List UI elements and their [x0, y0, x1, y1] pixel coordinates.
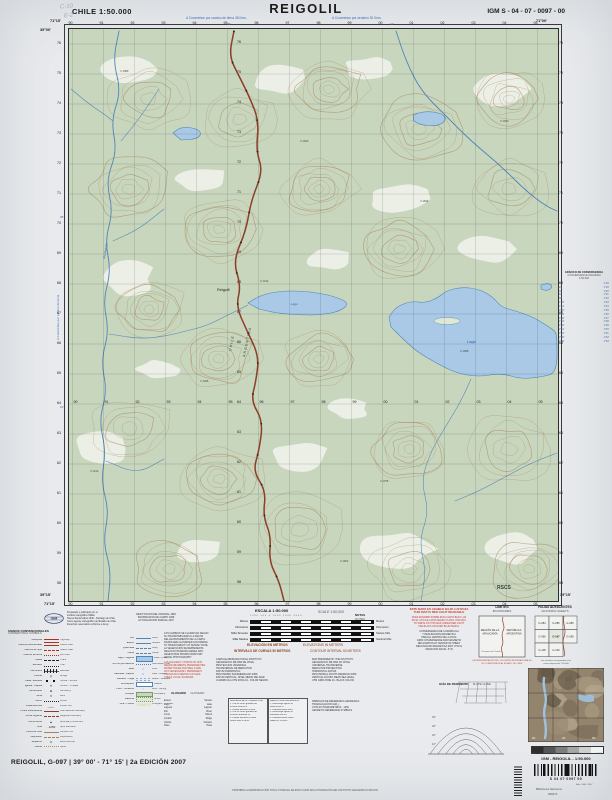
- contour-line: [501, 442, 518, 455]
- open-terrain-patch: [372, 184, 430, 212]
- margin-easting-bottom: 90: [69, 602, 73, 606]
- scale-label-es: Kilómetros: [216, 626, 250, 629]
- notes-label: NOTES: [348, 618, 372, 621]
- margin-northing-left: 75: [57, 71, 61, 75]
- legend-label-en: Sand: [59, 746, 66, 749]
- symbols-column-1: SIGNOS CONVENCIONALES CONVENTIONAL SYMBO…: [8, 630, 85, 750]
- symbol-hito: ▲: [44, 720, 59, 724]
- margin-northing-left: 66: [57, 341, 61, 345]
- grid-easting-label: 96: [260, 400, 264, 404]
- legend-label-es: Río: [100, 637, 136, 640]
- grid-northing-label: 62: [237, 460, 241, 464]
- text-line: GEODETIC REFERENCE SYMBOLS: [312, 709, 400, 712]
- legend-label-es: Límite regional: [8, 715, 44, 718]
- legend-label-es: Límite internacional: [8, 710, 44, 713]
- symbols-rows-1: AutopistaHighwayCamino pavimentadoPaved …: [8, 638, 85, 750]
- margin-northing-right: 73: [559, 131, 563, 135]
- margin-northing-left: 68: [57, 281, 61, 285]
- contour-line: [299, 174, 338, 205]
- limites-label-bottom: Provincia de Cautín: [481, 650, 501, 653]
- grid-northing-label: 73: [237, 130, 241, 134]
- margin-northing-left: 76: [57, 41, 61, 45]
- elevation-line1-es: ELEVACIÓN EN METROS: [247, 644, 288, 648]
- legend-label-es: Cascada - Rápido: [100, 673, 136, 676]
- scale-label-es: Metros: [216, 620, 250, 623]
- legend-label-es: Estero: [100, 642, 136, 645]
- label-lake-big: Lago: [467, 339, 477, 344]
- slope-tick-label: 20°: [432, 733, 436, 737]
- legend-label-en: Spot elevation: [59, 726, 76, 729]
- margin-easting-top: 99: [348, 21, 352, 25]
- adjoining-sheet-code: G-109: [552, 648, 560, 652]
- limites-label-left-2: ARAUCANÍA: [482, 632, 497, 636]
- legend-label-es: Cerco: [8, 700, 44, 703]
- igm-seal-icon: IGM: [44, 613, 64, 624]
- convergence-block: GRÁFICO DE CONVERGENCIA CONVERGENCE DIAG…: [559, 272, 609, 343]
- scale-bar: [250, 626, 374, 631]
- legend-label-es: Ventisquero: [100, 683, 136, 686]
- classification-notes: LOS CAMINOS SE CLASIFICAN SEGÚNSU TRANSI…: [164, 632, 212, 659]
- symbol-blue2: [136, 637, 151, 641]
- margin-northing-left: 58: [57, 581, 61, 585]
- declination-notes: CONVERGENCIA DE CUADRÍCULAY DECLINACIÓN …: [404, 630, 474, 651]
- contour-line: [320, 81, 340, 97]
- margin-easting-bottom: 01: [410, 602, 414, 606]
- margin-northing-right: 70: [559, 221, 563, 225]
- grid-northing-label: 66: [237, 340, 241, 344]
- spot-height: 1544: [423, 199, 429, 203]
- scale-label-en: Nautical Mile: [374, 638, 391, 641]
- datum-text-en: MAP PREPARED BY THE INSTITUTOGEOGRÁFICO …: [312, 658, 404, 682]
- legend-label-en: Power line: [59, 705, 72, 708]
- legend-label-en: International boundary: [59, 710, 85, 713]
- legend-label-en: Mine: [59, 695, 66, 698]
- minute-label-left: 05': [60, 216, 64, 219]
- scale-bars: MetrosMetersKilómetrosKilometersMilla Te…: [216, 619, 406, 643]
- margin-easting-top: 91: [100, 21, 104, 25]
- contour-line: [213, 354, 224, 363]
- grid-northing-label: 76: [237, 40, 241, 44]
- margin-northing-right: 59: [559, 551, 563, 555]
- legend-label-es: Puente: [8, 675, 44, 678]
- symbol-fence: [44, 700, 59, 704]
- country-scale-label: CHILE 1:50.000: [72, 8, 132, 17]
- bar-number: 2000: [597, 753, 602, 756]
- text-line: USE BLACK OR DARK BLUE PENCIL.: [404, 625, 474, 628]
- symbol-blueDash: [136, 652, 151, 656]
- lake-island: [434, 318, 460, 325]
- legend-label-en: Dirt road: [59, 654, 70, 657]
- symbol-cem: ⊞: [44, 689, 59, 693]
- grid-easting-label: 91: [105, 400, 109, 404]
- contour-line: [313, 355, 324, 363]
- symbol-lake: [136, 656, 153, 661]
- route-note-right: A Curarrehue por sendero 52 Kms.: [332, 17, 381, 21]
- grid-easting-label: 95: [229, 400, 233, 404]
- legend-label-en: Bridge: [59, 675, 68, 678]
- contour-line: [394, 245, 405, 254]
- legend-label-es: Camino de ripio: [8, 649, 44, 652]
- legend-label-es: Sendero: [8, 664, 44, 667]
- open-terrain-patch: [100, 56, 158, 83]
- contour-line: [477, 164, 539, 216]
- grid-northing-label: 63: [237, 430, 241, 434]
- symbol-blueDash: [136, 647, 151, 651]
- contour-line: [227, 107, 256, 130]
- symbol-blkDash: [44, 659, 59, 663]
- margin-easting-top: 02: [441, 21, 445, 25]
- symbol-scrub: [136, 697, 153, 702]
- grid-northing-label: 58: [237, 580, 241, 584]
- river: [109, 305, 248, 338]
- text-line: CUADRÍCULA UTM ZONA 19 - COLOR NEGRO.: [216, 679, 308, 682]
- legend-label-en: Glacier: [153, 683, 162, 686]
- symbol-vine: : : :: [136, 703, 151, 706]
- spot-height: 1210: [93, 469, 99, 473]
- corner-tr-lon: 71°00': [536, 19, 547, 23]
- symbol-mine: ✕: [44, 694, 59, 698]
- margin-northing-right: 71: [559, 191, 563, 195]
- contour-line: [493, 436, 526, 463]
- margin-easting-bottom: 00: [379, 602, 383, 606]
- spot-height: 1495: [203, 379, 209, 383]
- contour-line: [180, 447, 265, 511]
- lake: [541, 284, 552, 291]
- adjoining-sheet-code: G-108: [538, 648, 546, 652]
- grid-easting-label: 97: [291, 400, 295, 404]
- legend-label-en: Rock outcrop: [59, 741, 75, 744]
- river: [113, 209, 164, 241]
- text-line: MUESTRA: 976653: [230, 720, 266, 723]
- spot-height: 1488: [463, 349, 469, 353]
- notes-column: LOS CAMINOS SE CLASIFICAN SEGÚNSU TRANSI…: [164, 632, 212, 728]
- legend-label-en: Ford: [151, 668, 158, 671]
- elevation-line2-en: CONTOUR INTERVAL 50 METERS: [310, 650, 361, 654]
- limites-block: LÍMITES BOUNDARIES: [478, 606, 526, 613]
- legend-label-en: Track: [59, 659, 67, 662]
- adjoining-sheet-code: G-096: [538, 635, 546, 639]
- legend-label-es: Huella: [8, 659, 44, 662]
- grid-reference-box-en: SAMPLE GRID REFERENCE1. Read large figur…: [268, 698, 308, 744]
- open-terrain-patch: [360, 533, 439, 569]
- hojas-header-en: ADJOINING SHEETS: [530, 610, 580, 613]
- contour-line: [163, 564, 175, 574]
- margin-northing-left: 62: [57, 461, 61, 465]
- contour-line: [213, 225, 225, 233]
- margin-easting-bottom: 99: [348, 602, 352, 606]
- legend-label-en: Church - Chapel: [59, 685, 79, 688]
- margin-northing-left: 67: [57, 311, 61, 315]
- symbol-redDot: [44, 654, 59, 658]
- limites-label-right-2: ARGENTINA: [506, 632, 521, 636]
- symbol-red1: [44, 644, 59, 648]
- grid-northing-label: 59: [237, 550, 241, 554]
- legend-label-es: Mina: [8, 695, 44, 698]
- legend-row: ArenalSand: [8, 745, 85, 750]
- contour-line: [398, 441, 421, 457]
- legend-label-es: Cementerio: [8, 690, 44, 693]
- glossary-header-es: GLOSARIO: [171, 691, 186, 695]
- datum-text-es: CARTA ELABORADA POR EL INSTITUTOGEOGRÁFI…: [216, 658, 308, 682]
- margin-easting-bottom: 97: [286, 602, 290, 606]
- margin-northing-right: 62: [559, 461, 563, 465]
- legend-label-en: Highway: [59, 639, 70, 642]
- margin-northing-right: 76: [559, 41, 563, 45]
- slope-tick-label: 45°: [432, 715, 436, 719]
- margin-northing-left: 63: [57, 431, 61, 435]
- symbol-rock: ∗: [44, 740, 59, 744]
- symbol-bndReg: [44, 715, 59, 719]
- limites-diagram: REGIÓN DE LA ARAUCANÍA REPÚBLICA ARGENTI…: [478, 615, 526, 658]
- corner-tl-lon: 71°15': [50, 19, 61, 23]
- contour-line: [285, 330, 351, 386]
- legend-label-es: Cota: [8, 726, 44, 729]
- contour-line: [388, 240, 412, 259]
- legend-label-es: Ferrocarril: [8, 670, 44, 673]
- legend-label-es: Depresión: [8, 736, 44, 739]
- contour-line: [385, 431, 432, 467]
- margin-northing-right: 64: [559, 401, 563, 405]
- symbol-bndInt: [44, 710, 59, 714]
- legend-label-es: Camino pavimentado: [8, 644, 44, 647]
- legend-label-es: Quebrada: [100, 647, 136, 650]
- contour-line: [304, 177, 335, 201]
- legend-label-en: Boundary monument: [59, 721, 84, 724]
- margin-northing-left: 72: [57, 161, 61, 165]
- legend-label-en: Contour line: [59, 731, 74, 734]
- symbol-cross: ✝: [44, 684, 59, 688]
- legend-label-en: Stream: [151, 642, 161, 645]
- scale-label-en: Statute Mile: [374, 632, 390, 635]
- legend-label-en: Paved road: [59, 644, 73, 647]
- contour-line: [371, 422, 442, 475]
- symbol-glacier: [136, 682, 153, 687]
- legend-label-en: Gully: [151, 647, 158, 650]
- library-number: 098470: [548, 793, 557, 796]
- contour-line: [185, 200, 264, 264]
- scale-bar: [250, 632, 374, 637]
- legend-label-es: Canal: [100, 652, 136, 655]
- grid-northing-label: 72: [237, 160, 241, 164]
- contour-line: [393, 104, 451, 150]
- convergence-table: 10'1°18'20'1°19'30'1°20'40'1°21'50'1°22'…: [559, 282, 609, 344]
- grid-easting-label: 00: [384, 400, 388, 404]
- text-line: SAMPLE: 976653: [270, 720, 306, 723]
- elevation-tint-blob: [537, 668, 555, 684]
- legend-label-es: Roquerío: [8, 741, 44, 744]
- symbol-depr: [44, 735, 59, 739]
- text-line: VARIACIÓN ANUAL: 8' W: [404, 648, 474, 651]
- symbol-power: —•—: [44, 705, 59, 709]
- legend-row: Viña - Huerto: : :Vineyard - Orchard: [100, 702, 173, 707]
- grid-easting-label: 90: [74, 400, 78, 404]
- boundary-markers: [231, 31, 284, 601]
- igm-seal-text: IGM: [51, 617, 58, 621]
- legend-label-es: Vado: [100, 668, 136, 671]
- contour-line: [233, 114, 247, 124]
- contour-line: [207, 221, 230, 238]
- margin-northing-left: 71: [57, 191, 61, 195]
- glossary-header-en: GLOSSARY: [191, 692, 205, 695]
- symbols-rows-2: RíoRiverEsteroStreamQuebradaGullyCanalCa…: [100, 636, 173, 707]
- contour-line: [150, 556, 186, 583]
- contour-line: [205, 88, 277, 147]
- contour-line: [404, 445, 415, 454]
- contour-line: [208, 469, 230, 488]
- legend-label-es: Viña - Huerto: [100, 703, 136, 706]
- contour-line: [502, 183, 516, 195]
- grid-easting-label: 05: [539, 400, 543, 404]
- inset-grid-number: 90: [532, 736, 536, 740]
- minute-label-top: 10': [390, 23, 394, 26]
- margin-northing-right: 75: [559, 71, 563, 75]
- symbol-sq: [44, 679, 59, 683]
- legend-label-es: Arenal: [8, 746, 44, 749]
- edition-note: Edic. IGM - 2007: [576, 784, 592, 787]
- label-stamp: RSCS: [497, 585, 512, 591]
- contour-line: [308, 180, 330, 197]
- grid-easting-label: 04: [508, 400, 512, 404]
- margin-easting-bottom: 96: [255, 602, 259, 606]
- margin-northing-right: 72: [559, 161, 563, 165]
- margin-easting-bottom: 93: [162, 602, 166, 606]
- slope-guide-diagram: 45°30°20°10°: [424, 678, 510, 760]
- grid-reference-box-es: REFERENCIA DE CUADRÍCULA1. Lea las cifra…: [228, 698, 268, 744]
- symbol-spot: · 1250: [44, 725, 59, 729]
- symbol-bridge: )(: [44, 674, 59, 678]
- slope-tick-label: 10°: [432, 742, 436, 746]
- margin-easting-top: 00: [379, 21, 383, 25]
- margin-easting-top: 92: [131, 21, 135, 25]
- contour-line: [130, 294, 169, 327]
- legend-label-en: Fence: [59, 700, 67, 703]
- margin-easting-top: 90: [69, 21, 73, 25]
- grid-easting-label: 01: [415, 400, 419, 404]
- publisher-imprint: Preparado y publicado por elInstituto Ge…: [67, 611, 125, 626]
- contour-line: [291, 523, 309, 537]
- map-canvas: 9091929394959697989900010203040576757473…: [68, 28, 559, 602]
- contour-line: [139, 301, 158, 316]
- contour-line: [524, 565, 535, 573]
- margin-northing-left: 60: [57, 521, 61, 525]
- library-stamp: Biblioteca Nacional: [536, 788, 562, 791]
- grid-northing-label: 74: [237, 100, 241, 104]
- corner-tl-lat: 39°00': [40, 28, 51, 32]
- corner-bl-lon: 71°15': [44, 602, 55, 606]
- legend-label-en: Trail: [59, 664, 65, 667]
- symbol-blkDot: [44, 664, 59, 668]
- margin-northing-left: 65: [57, 371, 61, 375]
- open-terrain-patch: [327, 398, 366, 419]
- contour-line: [467, 415, 550, 480]
- legend-label-en: Gravel road: [59, 649, 74, 652]
- symbol-rail: [44, 669, 59, 673]
- legend-label-es: Iglesia - Capilla: [8, 685, 44, 688]
- river: [121, 89, 159, 141]
- adjoining-sheets-diagram: G-084G-085G-086G-096G-097G-098G-108G-109: [534, 615, 578, 658]
- label-argentina: ARGENTINA: [242, 326, 252, 357]
- contour-line: [134, 86, 167, 111]
- contour-line: [141, 93, 156, 105]
- contour-line: [314, 185, 324, 194]
- legend-label-es: Curva de nivel: [8, 731, 44, 734]
- elevation-line1-en: ELEVATIONS IN METERS: [303, 644, 343, 648]
- convergence-scale: 1:50.000: [559, 278, 609, 281]
- contour-line: [116, 179, 144, 199]
- glossary-row: PasoPass: [164, 724, 212, 728]
- contour-line: [286, 333, 354, 382]
- margin-easting-bottom: 03: [472, 602, 476, 606]
- open-terrain-patch: [484, 532, 537, 564]
- scale-bar: [250, 638, 374, 643]
- contour-line: [88, 157, 167, 217]
- red-light-paragraph: PARA ESCRIBIR SOBRE ESTA CARTA BAJO LUZR…: [404, 616, 474, 628]
- grid-easting-label: 99: [353, 400, 357, 404]
- grid-northing-label: 65: [237, 370, 241, 374]
- contour-line: [199, 343, 241, 378]
- contour-line: [323, 85, 335, 94]
- open-terrain-patch: [135, 360, 181, 378]
- margin-easting-top: 01: [410, 21, 414, 25]
- grid-northing-label: 64: [237, 400, 241, 404]
- grid-northing-label: 70: [237, 220, 241, 224]
- elevation-guide-inset: 900065: [528, 668, 604, 742]
- open-terrain-patch: [76, 431, 125, 464]
- contour-line: [488, 169, 535, 205]
- margin-easting-top: 96: [255, 21, 259, 25]
- legend-label-es: Lago - Laguna: [100, 657, 136, 660]
- symbols-column-2: RíoRiverEsteroStreamQuebradaGullyCanalCa…: [100, 636, 173, 707]
- grid-easting-label: 02: [446, 400, 450, 404]
- contour-line: [156, 560, 183, 580]
- open-terrain-patch: [346, 57, 393, 79]
- margin-easting-top: 98: [317, 21, 321, 25]
- label-village: Reigolil: [217, 288, 230, 292]
- international-boundary-road: [231, 31, 284, 601]
- river: [455, 453, 557, 501]
- margin-easting-bottom: 95: [224, 602, 228, 606]
- contour-line: [213, 474, 225, 483]
- margin-northing-right: 60: [559, 521, 563, 525]
- contour-line: [393, 436, 424, 464]
- slope-curve: [446, 739, 486, 754]
- legend-label-en: Railroad: [59, 670, 70, 673]
- symbols-header-en: CONVENTIONAL SYMBOLS: [8, 633, 85, 636]
- contour-line: [200, 466, 237, 495]
- slope-curve: [438, 734, 494, 754]
- legend-label-en: Canal: [151, 652, 159, 655]
- open-terrain-patch: [273, 443, 328, 472]
- margin-northing-right: 61: [559, 491, 563, 495]
- margin-easting-top: 05: [534, 21, 538, 25]
- spot-height: 1312: [263, 279, 269, 283]
- legend-label-es: Pantano - Vega: [100, 678, 136, 681]
- footer-title-line: REIGOLIL, G-097 | 39° 00' - 71° 15' | 2a…: [11, 759, 186, 767]
- geodetic-reference-notes: SÍMBOLOS DE REFERENCIA GEODÉSICATRIANGUL…: [312, 700, 400, 712]
- symbol-well: ○: [136, 687, 151, 691]
- spot-height: 1705: [383, 479, 389, 483]
- grid-easting-label: 93: [167, 400, 171, 404]
- red-light-line-en: THIS MAP IS RED LIGHT READABLE: [404, 611, 474, 614]
- margin-northing-left: 69: [57, 251, 61, 255]
- contour-line: [364, 220, 435, 276]
- barcode-digits: S 04 07 0097 00: [530, 778, 602, 782]
- grid-easting-label: 03: [477, 400, 481, 404]
- legend-label-en: Scrub: [153, 698, 161, 701]
- margin-easting-top: 94: [193, 21, 197, 25]
- legend-label-es: Bosque: [100, 693, 136, 696]
- scale-title-en: SCALE 1:50,000: [318, 610, 344, 614]
